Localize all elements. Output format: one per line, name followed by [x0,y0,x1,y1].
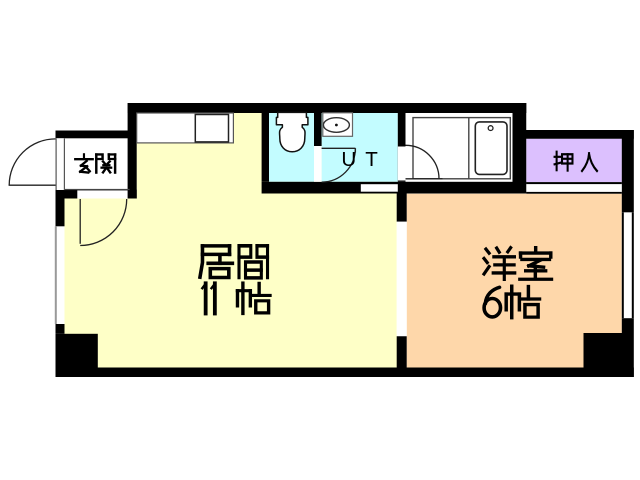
svg-text:U: U [341,148,356,171]
svg-text:T: T [365,148,378,171]
